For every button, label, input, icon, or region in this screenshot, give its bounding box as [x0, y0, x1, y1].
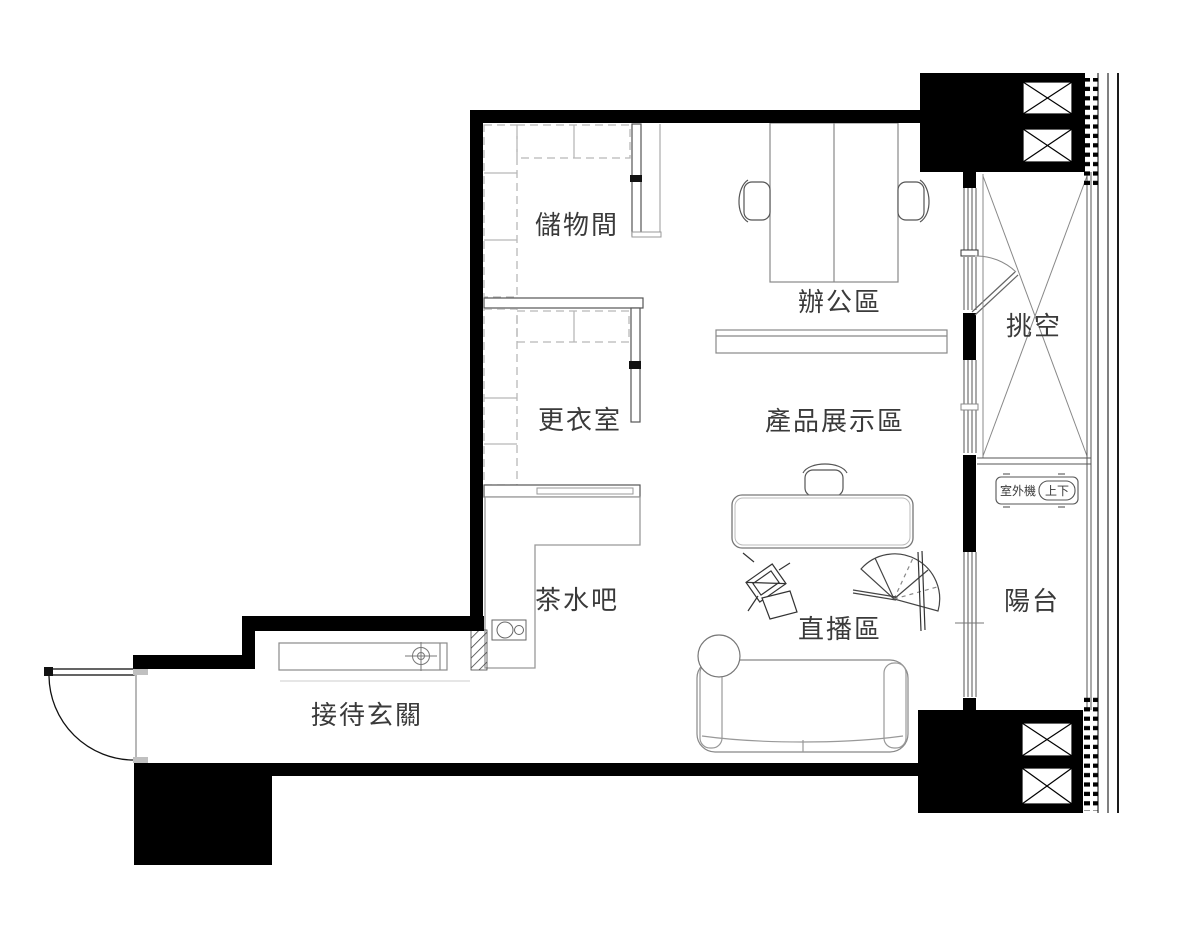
window-mullions [955, 188, 984, 697]
balcony-door [972, 256, 1018, 315]
label-balcony: 陽台 [1004, 586, 1060, 616]
label-void: 挑空 [1006, 311, 1062, 341]
facade-lines [1098, 73, 1118, 813]
office-console-cabinet [716, 330, 947, 353]
storage-partition-wall [630, 124, 661, 237]
louver-ticks-top [1084, 78, 1098, 190]
livestream-chair [803, 464, 847, 496]
label-storage: 儲物間 [535, 210, 619, 240]
label-entry: 接待玄關 [311, 700, 423, 730]
reception-counter [279, 642, 447, 671]
dressing-partition-wall [629, 308, 641, 422]
balcony-edge [1087, 172, 1091, 710]
structural-walls [133, 73, 1085, 865]
livestream-desk [732, 495, 913, 548]
label-outdoor-unit: 室外機 [1000, 483, 1036, 498]
label-office: 辦公區 [798, 287, 882, 317]
storage-dressing-wall [484, 298, 643, 308]
louver-ticks-bottom [1084, 697, 1098, 811]
camera-tripod [743, 553, 797, 619]
office-desk [770, 123, 898, 282]
label-live: 直播區 [798, 614, 882, 644]
entrance-door [44, 667, 148, 763]
label-dressing: 更衣室 [538, 405, 622, 435]
hatched-wall-pier [471, 630, 487, 670]
dressing-bottom-wall [484, 485, 640, 497]
label-tea-bar: 茶水吧 [535, 585, 619, 615]
tea-bar-counter [485, 497, 640, 668]
label-display: 產品展示區 [765, 406, 905, 436]
dressing-cabinets [484, 309, 629, 485]
office-chair-left [739, 180, 770, 222]
floor-plan: 儲物間 辦公區 更衣室 產品展示區 茶水吧 直播區 接待玄關 挑空 陽台 室外機… [0, 0, 1200, 930]
sofa-side-table [698, 635, 740, 677]
office-chair-right [898, 180, 929, 222]
shaft-boxes [1022, 82, 1072, 804]
label-outdoor-unit-mode: 上下 [1045, 484, 1069, 498]
